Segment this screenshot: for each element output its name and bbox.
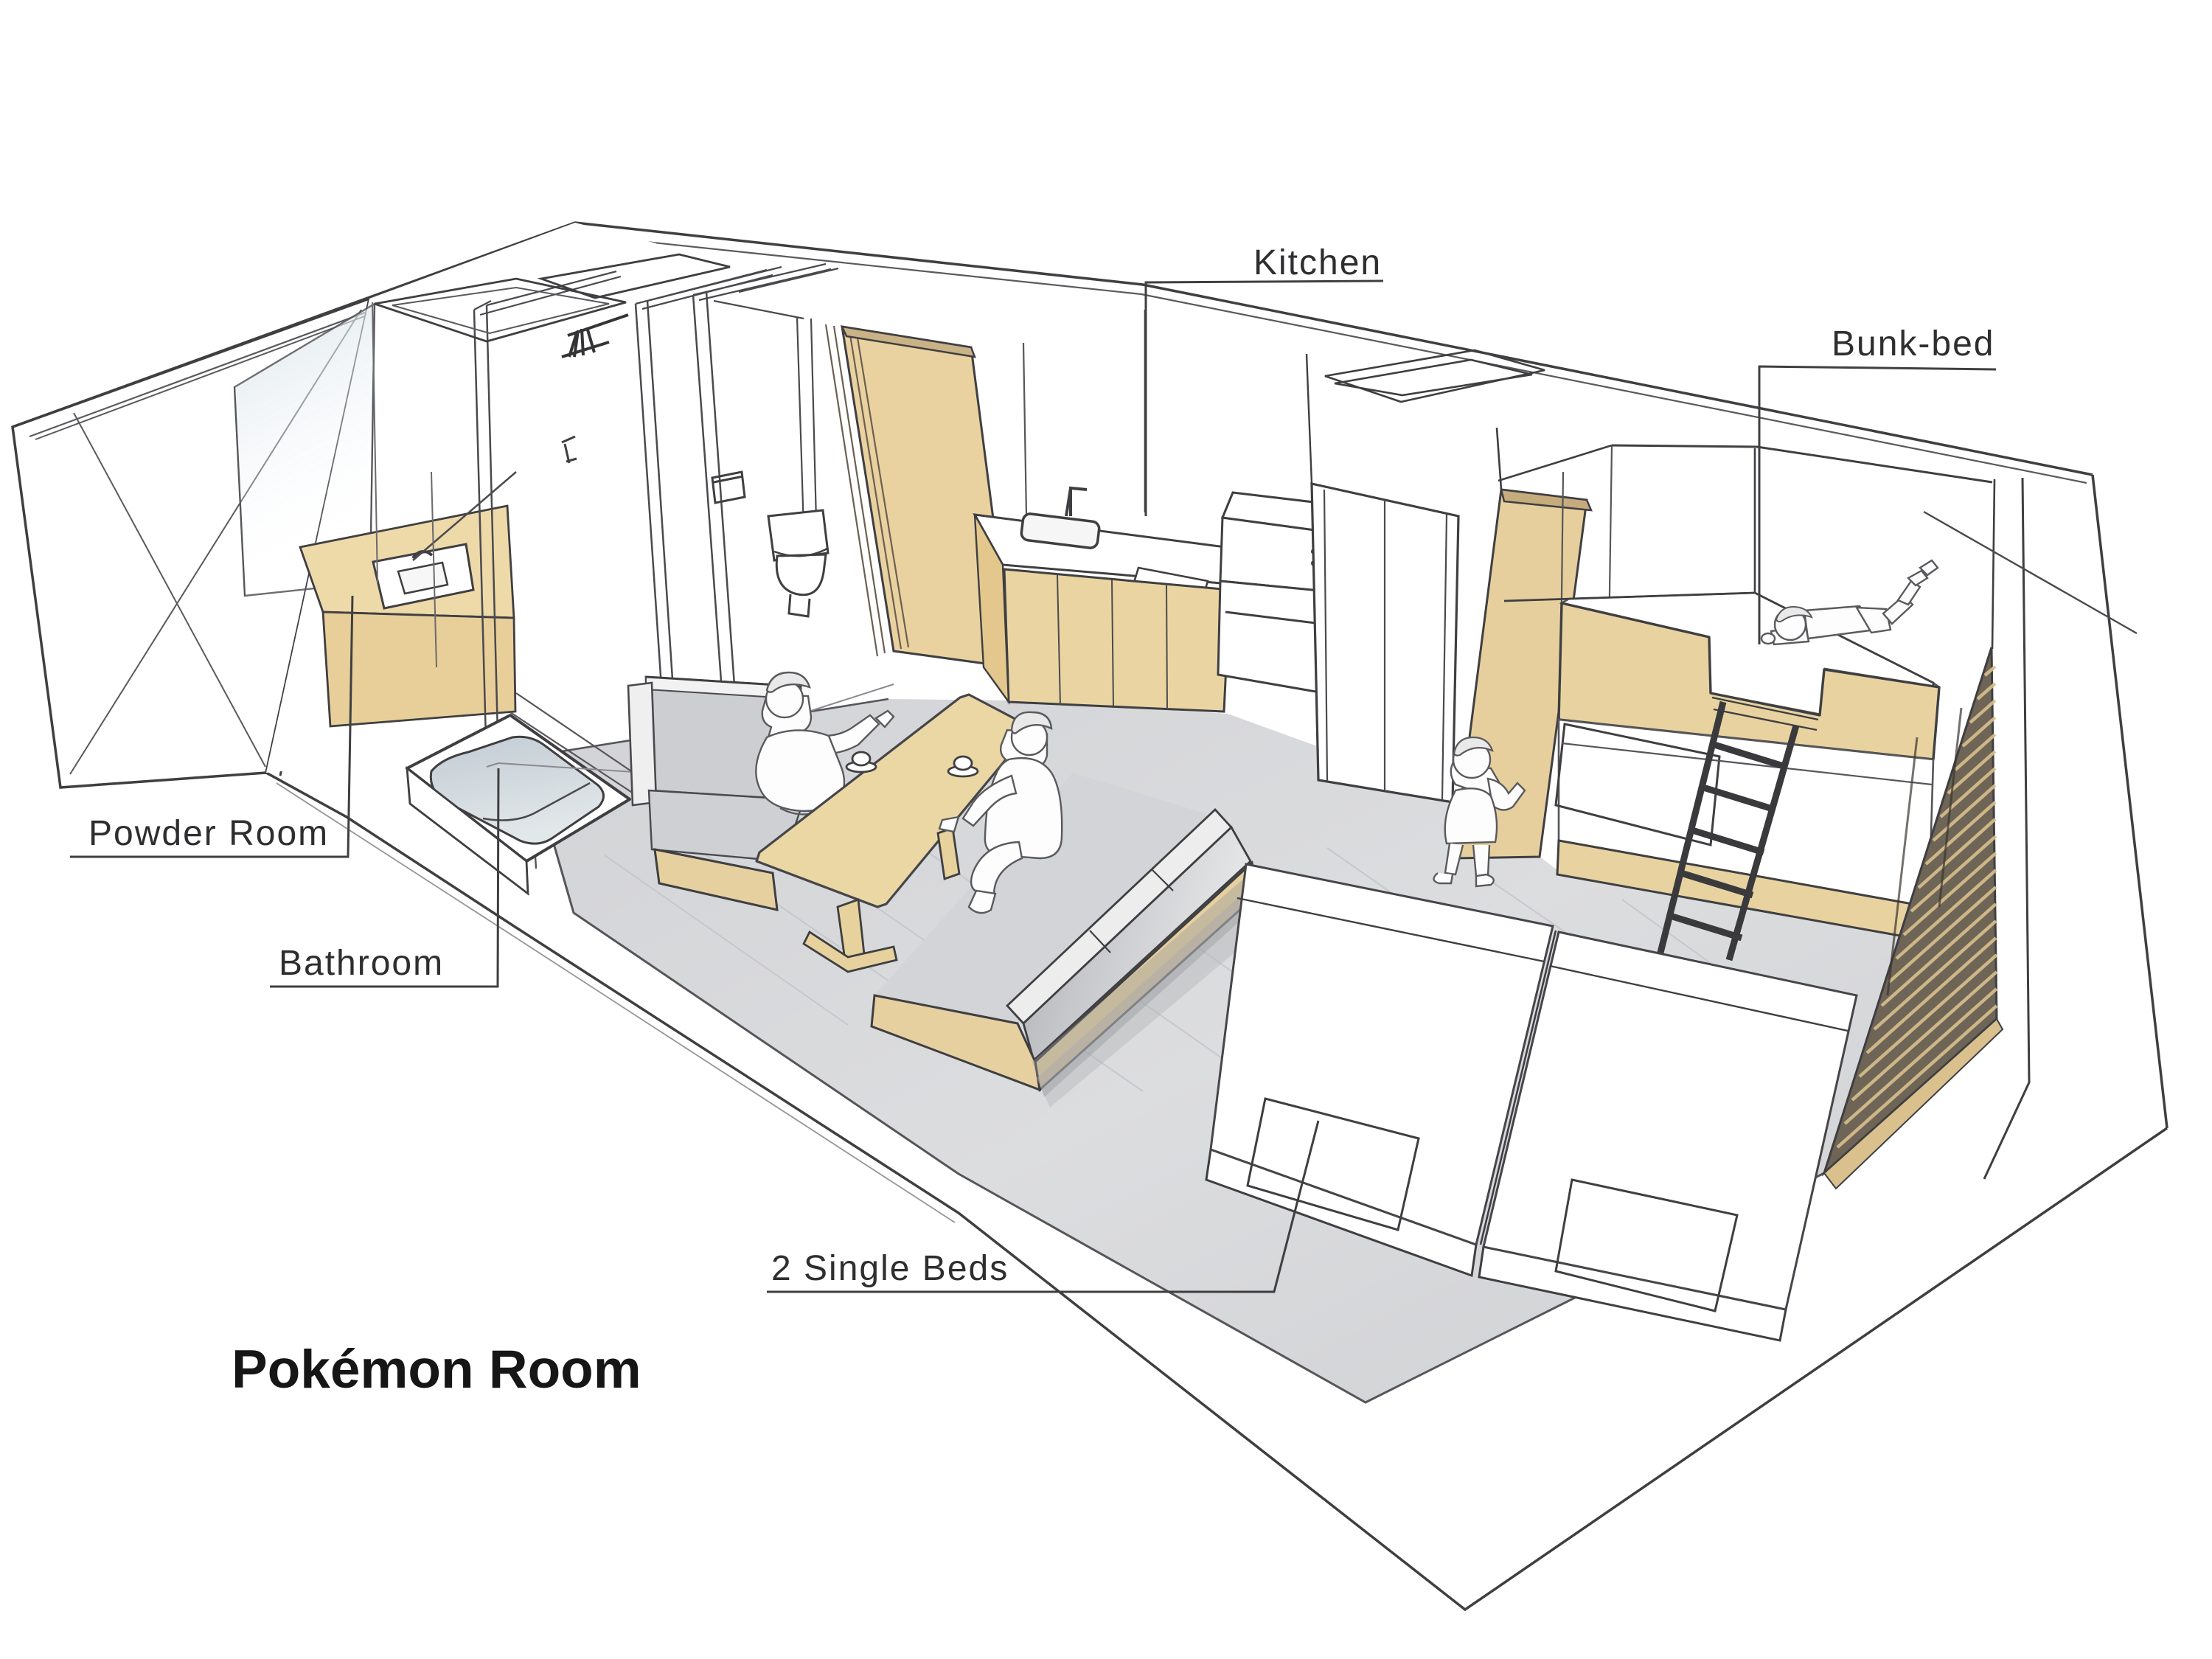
svg-text:2 Single Beds: 2 Single Beds [771,1249,1009,1288]
svg-text:Kitchen: Kitchen [1253,243,1382,282]
svg-text:Pokémon Room: Pokémon Room [232,1340,641,1399]
svg-text:Bunk-bed: Bunk-bed [1832,324,1994,364]
svg-text:Powder Room: Powder Room [88,814,329,853]
svg-text:Bathroom: Bathroom [279,944,444,983]
